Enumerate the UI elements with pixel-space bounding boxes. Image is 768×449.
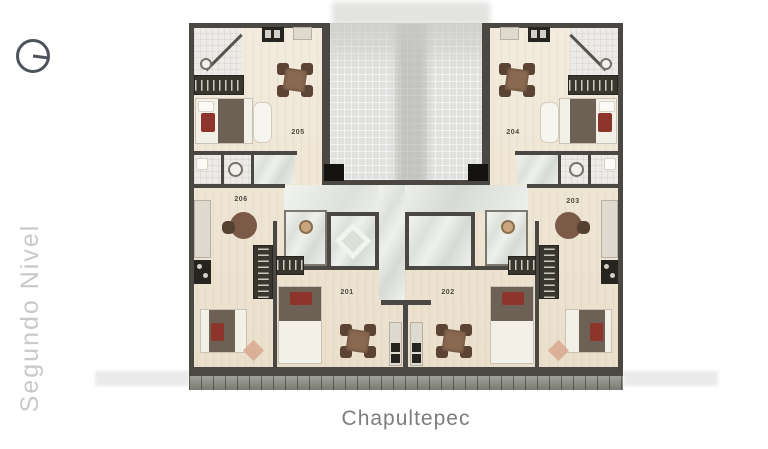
sink-icon: [569, 162, 584, 177]
bed-201: [278, 286, 322, 364]
closet-202: [508, 256, 536, 275]
plan-title: Chapultepec: [189, 407, 623, 431]
bathroom-205: [194, 28, 242, 76]
bed-202: [490, 286, 534, 364]
closet-204: [568, 75, 618, 95]
bed-204: [559, 98, 617, 144]
bathroom-204: [570, 28, 618, 76]
toilet-icon: [604, 158, 616, 170]
unit-label-204: 204: [502, 129, 524, 136]
kitchen-counter-204: [500, 27, 519, 40]
level-label: Segundo Nivel: [15, 193, 45, 443]
chair-206: [222, 221, 235, 234]
bathroom-band-left: [194, 155, 295, 184]
chair-203: [577, 221, 590, 234]
compass-needle-icon: [33, 55, 48, 60]
wall: [588, 155, 591, 184]
wall: [251, 155, 254, 184]
stove-205: [262, 27, 284, 42]
void-wall-bottom: [322, 180, 490, 185]
sink-icon: [501, 220, 515, 234]
void-top-halo: [332, 2, 490, 25]
kitchen-206: [194, 200, 211, 258]
closet-203: [539, 245, 559, 299]
floor-plan: 201 202 203 204 205 206: [189, 23, 623, 390]
shower-left: [252, 155, 295, 184]
chaise-204: [540, 102, 559, 143]
wall: [558, 155, 561, 184]
kitchen-counter-205: [293, 27, 312, 40]
wall: [381, 300, 431, 305]
closet-205: [194, 75, 244, 95]
column: [468, 164, 488, 181]
stove-203: [601, 260, 618, 284]
sink-icon: [299, 220, 313, 234]
unit-label-202: 202: [437, 289, 459, 296]
corridor-center: [379, 185, 405, 300]
wall: [618, 23, 623, 372]
wall: [515, 151, 623, 155]
stove-206: [194, 260, 211, 284]
elevator-left: [327, 212, 379, 270]
wall: [189, 367, 623, 372]
void-wall-left: [322, 23, 330, 185]
bathroom-band-right: [517, 155, 618, 184]
kitchen-203: [601, 200, 618, 258]
central-void: [330, 23, 482, 180]
closet-206: [253, 245, 273, 299]
ground-line-left: [95, 371, 189, 386]
compass-icon: [16, 39, 50, 73]
dining-table-202: [436, 324, 472, 358]
wall: [189, 184, 285, 188]
wall: [527, 184, 623, 188]
wall: [221, 155, 224, 184]
sink-icon: [228, 162, 243, 177]
sink-icon: [200, 58, 212, 70]
stair-core-right: [405, 212, 475, 270]
elevator-cab-icon: [335, 223, 372, 260]
bed-203: [565, 309, 612, 353]
wall: [403, 300, 408, 367]
wall: [189, 151, 297, 155]
wall: [273, 221, 277, 367]
dining-table-205: [277, 63, 313, 97]
unit-label-205: 205: [287, 129, 309, 136]
bed-205: [195, 98, 253, 144]
unit-label-203: 203: [562, 198, 584, 205]
shower-right: [517, 155, 560, 184]
closet-201: [276, 256, 304, 275]
void-wall-right: [482, 23, 490, 185]
dining-table-201: [340, 324, 376, 358]
bed-206: [200, 309, 247, 353]
column: [324, 164, 344, 181]
sink-icon: [600, 58, 612, 70]
toilet-icon: [196, 158, 208, 170]
corridor-lobby: [284, 185, 528, 212]
kitchen-201: [389, 322, 402, 366]
ground-line-right: [623, 371, 718, 386]
chaise-205: [253, 102, 272, 143]
floor-plan-page: Segundo Nivel: [0, 0, 768, 449]
stove-204: [528, 27, 550, 42]
terrace-strip: [189, 372, 623, 390]
unit-label-206: 206: [230, 196, 252, 203]
unit-label-201: 201: [336, 289, 358, 296]
kitchen-202: [410, 322, 423, 366]
dining-table-204: [499, 63, 535, 97]
